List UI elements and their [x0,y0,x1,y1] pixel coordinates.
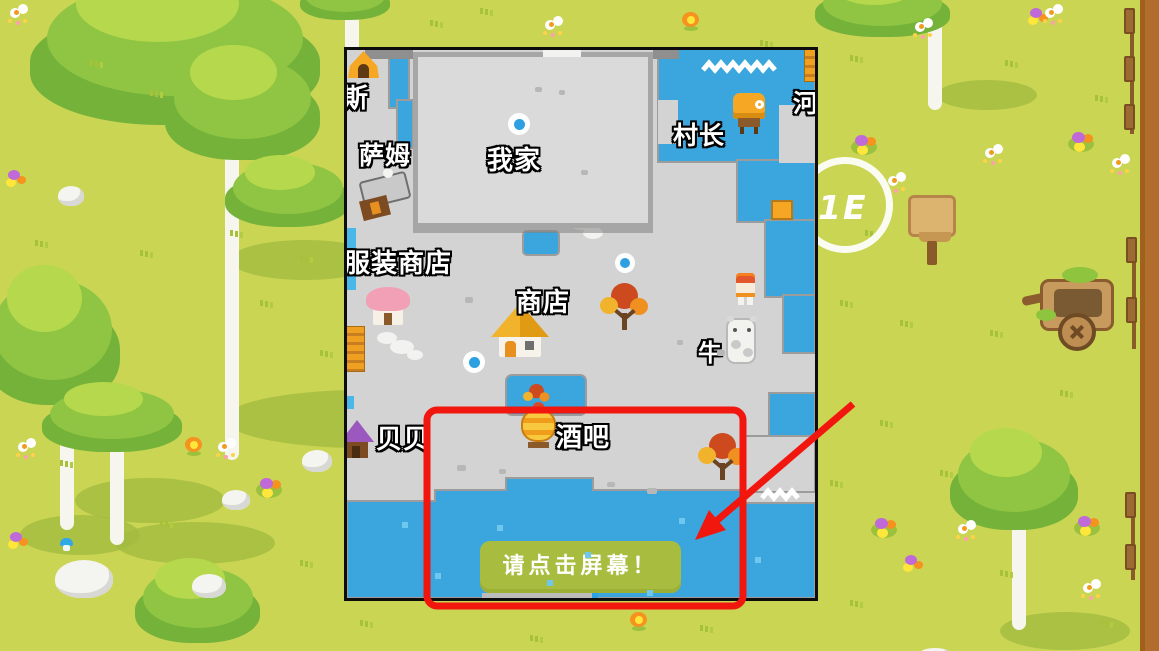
map-label-clothing-shop: 服装商店 [344,243,452,280]
flower-cluster-icon [855,135,875,153]
grass-tuft [830,480,833,486]
tree [135,558,260,643]
water-sparkle [755,557,761,563]
flower-cluster-icon [1078,516,1098,534]
flower-poppy-icon [185,437,205,455]
beibei-house-icon [344,420,374,464]
flower-daisy-icon [10,8,30,26]
player-marker-icon [615,253,635,273]
map-label-sam: 萨姆 [359,136,411,172]
flower-purple-icon [905,555,925,573]
flower-daisy-icon [18,442,38,460]
grass-tuft [700,625,703,631]
flower-daisy-icon [1045,8,1065,26]
grass-tuft [850,55,853,61]
tree [300,0,390,20]
fence [1126,237,1142,349]
autumn-tree-icon [600,283,650,337]
watermark-text: 1E [818,188,868,227]
grass-tuft [1005,60,1008,66]
water-sparkle [497,525,503,531]
grass-tuft [940,470,943,476]
flower-purple-icon [8,170,28,188]
rock [55,560,113,598]
grass-tuft [160,520,163,526]
map-label-village-chief: 村长 [673,116,725,152]
dirt-path [1140,0,1159,651]
flower-daisy-icon [915,22,935,40]
village-chief-tent-icon [733,93,767,135]
tree [225,155,350,227]
water-sparkle [435,573,441,579]
flower-daisy-icon [985,148,1005,166]
grass-tuft [840,300,843,306]
grass-tuft [60,460,63,466]
mushroom-icon [60,538,73,551]
grass-tuft [35,240,38,246]
pebble [499,469,506,474]
tree [42,382,182,452]
cliff-edge [653,50,679,59]
flower-cluster-icon [1072,132,1092,150]
tree [950,428,1078,530]
water-sparkle [547,580,553,586]
tree-trunk [110,443,124,545]
grass-tuft [140,250,143,256]
map-label-beibei: 贝贝 [376,419,430,456]
grass-tuft [850,600,853,606]
pebble [465,297,473,303]
grass-tuft [1095,95,1098,101]
grass-tuft [300,560,303,566]
flower-poppy-icon [682,12,702,30]
map-label-si: 斯 [344,78,369,115]
grass-tuft [150,90,153,96]
grass-tuft [430,20,433,26]
water-sparkle [679,518,685,524]
autumn-tree-icon [698,433,748,487]
water-sparkle [402,522,408,528]
grass-tuft [1100,620,1103,626]
snow-strip [543,50,581,57]
water-sparkle [585,552,591,558]
rock [58,186,84,206]
flower-poppy-icon [630,612,650,630]
grass-tuft [320,350,323,356]
flower-daisy-icon [958,524,978,542]
grass-tuft [1000,570,1003,576]
flower-cluster-icon [875,518,895,536]
pebble [677,340,683,345]
sam-house-icon [359,172,411,224]
flower-cluster-icon [260,478,280,496]
rock [222,490,250,510]
grass-tuft [90,60,93,66]
pebble [647,488,657,494]
tree-trunk [1012,518,1026,630]
pebble [535,87,542,92]
tree [165,45,320,160]
bridge-icon [346,326,365,372]
grass-tuft [260,300,263,306]
grass-tuft [1060,390,1063,396]
grass-tuft [300,255,303,261]
rock [302,450,332,472]
flower-daisy-icon [545,20,565,38]
autumn-tree-icon [523,384,551,414]
map-label-shop: 商店 [516,282,570,319]
grass-tuft [360,620,363,626]
pebble [457,465,466,471]
pebble [717,350,725,356]
grass-tuft [760,40,763,46]
map-label-river-edge: 河 [793,84,818,120]
bridge-icon [804,49,816,82]
flower-purple-icon [10,532,30,550]
tree-shadow [937,80,1037,110]
pebble [559,90,565,95]
grass-tuft [900,320,903,326]
tap-screen-button[interactable]: 请点击屏幕！ [480,541,681,593]
rock [192,574,226,598]
grass-tuft [480,8,483,14]
grass-tuft [990,330,993,336]
minimap-panel[interactable]: 斯 萨姆 我家 村长 服装商店 商店 牛 贝贝 酒吧 河 请点击屏幕！ [344,47,818,601]
signpost [908,195,956,267]
bridge-icon [771,200,793,220]
pebble [581,170,588,175]
flower-daisy-icon [1083,583,1103,601]
player-marker-icon [463,351,485,373]
player-marker-icon [508,113,530,135]
cliff-edge [365,50,413,59]
flower-daisy-icon [218,442,238,460]
map-label-bar: 酒吧 [556,417,610,454]
grass-tuft [230,230,233,236]
pebble [607,482,615,487]
game-scene: 1E [0,0,1159,651]
loading-bar [482,593,592,601]
villager-icon [736,273,755,306]
cow-icon [726,318,758,366]
flower-daisy-icon [1112,158,1132,176]
fence [1125,492,1141,580]
grass-tuft [530,635,533,641]
grass-tuft [880,420,883,426]
water-sparkle [647,590,653,596]
map-label-my-home: 我家 [487,140,541,177]
clothing-house-icon [366,287,410,327]
fence [1124,8,1140,134]
cart [1028,265,1123,355]
